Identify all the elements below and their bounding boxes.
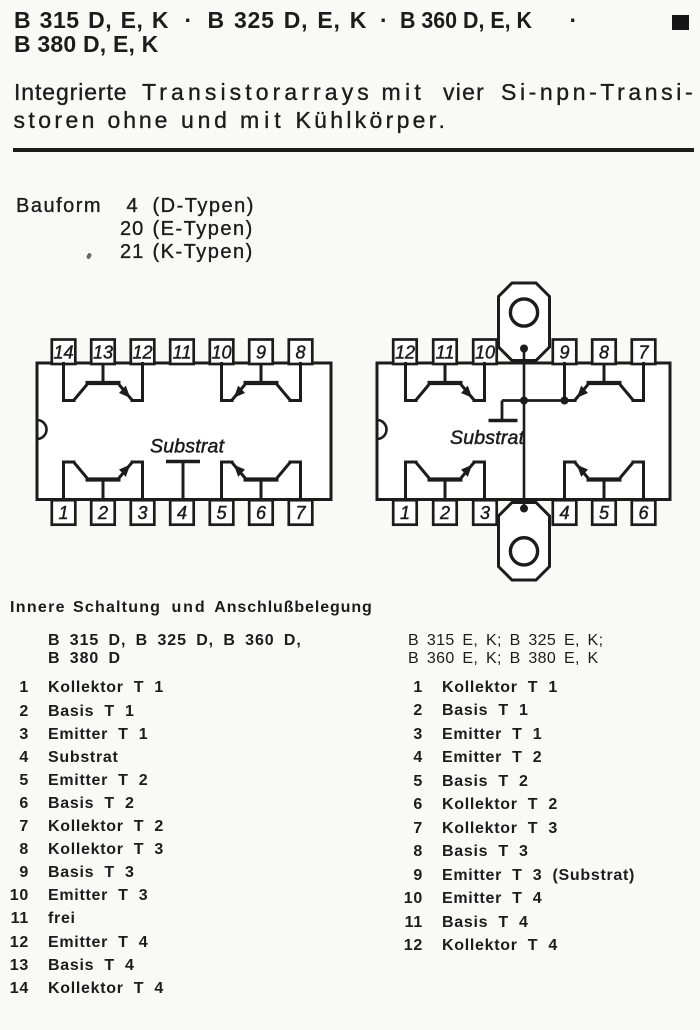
- svg-text:14: 14: [53, 343, 73, 363]
- svg-text:5: 5: [216, 503, 227, 523]
- svg-text:9: 9: [256, 343, 266, 363]
- svg-text:6: 6: [638, 503, 649, 523]
- svg-text:7: 7: [638, 343, 649, 363]
- svg-text:11: 11: [173, 343, 192, 363]
- svg-text:Substrat: Substrat: [150, 436, 226, 458]
- svg-text:1: 1: [400, 503, 410, 523]
- svg-text:13: 13: [93, 343, 113, 363]
- svg-text:10: 10: [475, 343, 495, 363]
- svg-text:9: 9: [559, 343, 569, 363]
- svg-text:11: 11: [436, 343, 455, 363]
- svg-text:3: 3: [137, 503, 147, 523]
- svg-text:12: 12: [132, 343, 152, 363]
- svg-text:4: 4: [177, 503, 187, 523]
- svg-text:12: 12: [395, 343, 415, 363]
- svg-text:Substrat: Substrat: [450, 427, 526, 449]
- svg-text:2: 2: [97, 503, 108, 523]
- svg-text:10: 10: [211, 343, 231, 363]
- svg-text:6: 6: [256, 503, 267, 523]
- svg-text:3: 3: [480, 503, 490, 523]
- svg-text:2: 2: [439, 503, 450, 523]
- svg-text:7: 7: [295, 503, 306, 523]
- svg-text:5: 5: [599, 503, 610, 523]
- svg-text:8: 8: [295, 343, 305, 363]
- svg-text:4: 4: [559, 503, 569, 523]
- svg-text:1: 1: [58, 503, 68, 523]
- svg-text:8: 8: [599, 343, 609, 363]
